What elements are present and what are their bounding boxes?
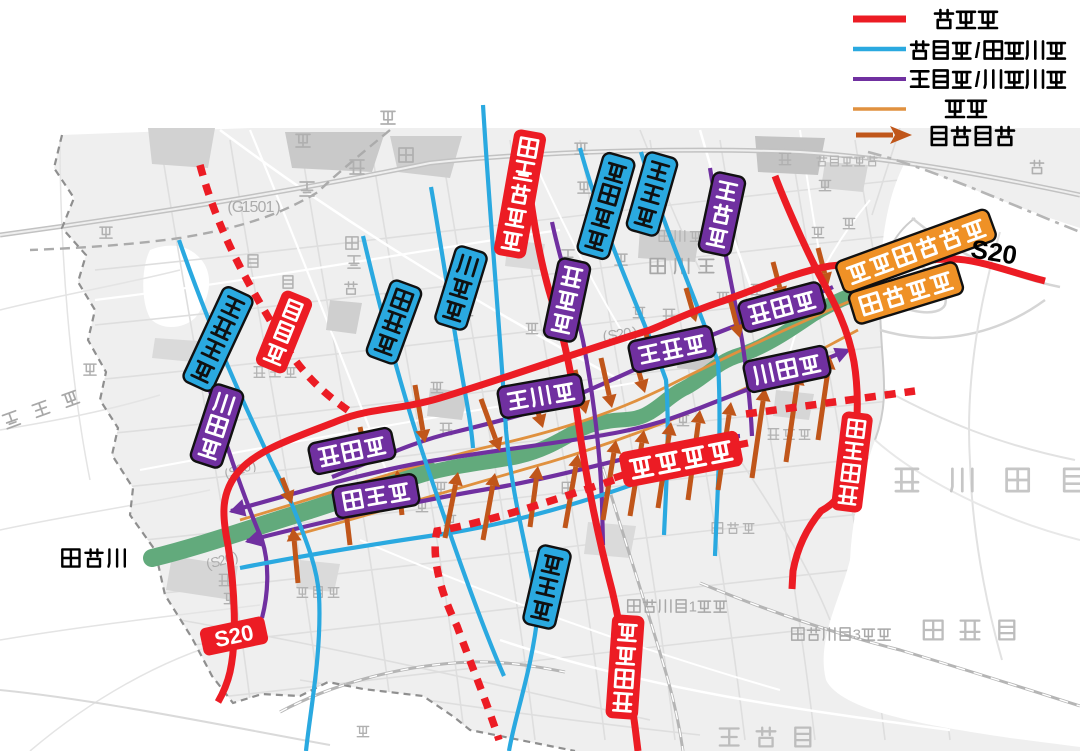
svg-text:3: 3 — [853, 626, 861, 643]
svg-text:1: 1 — [266, 199, 275, 216]
svg-text:/: / — [975, 69, 981, 92]
svg-text:): ) — [275, 199, 280, 216]
svg-text:/: / — [975, 40, 981, 63]
svg-text:1: 1 — [689, 598, 697, 615]
